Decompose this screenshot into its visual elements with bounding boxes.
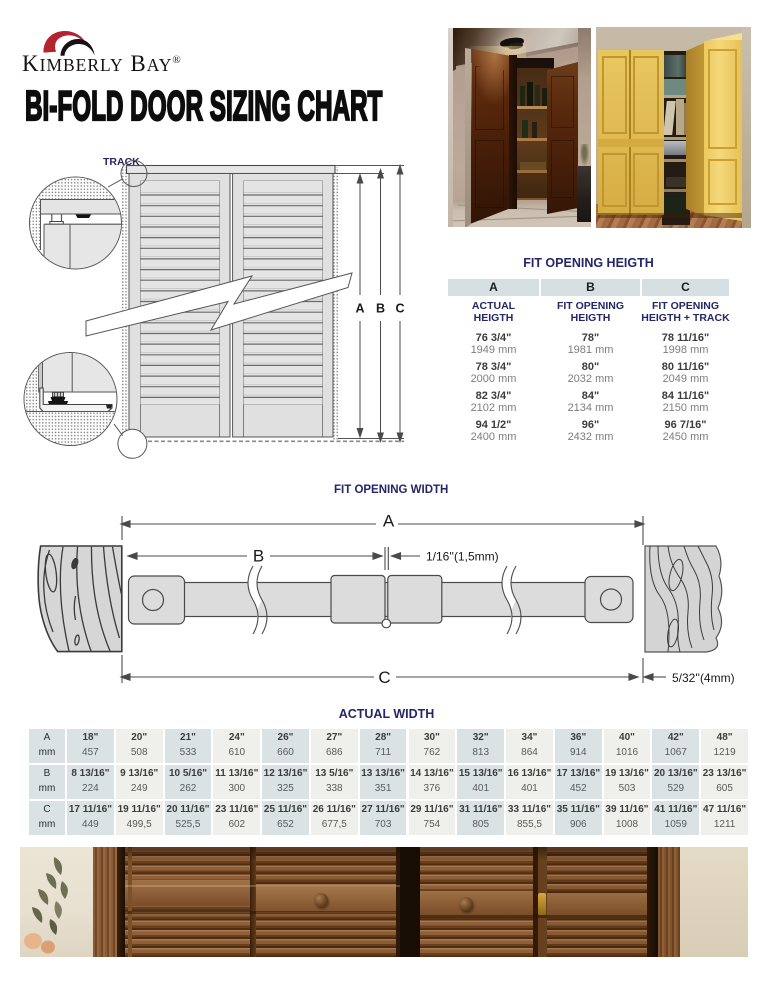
svg-text:1/16''(1,5mm): 1/16''(1,5mm) xyxy=(426,550,499,564)
svg-text:B: B xyxy=(253,547,264,566)
svg-text:C: C xyxy=(395,302,404,316)
svg-text:A: A xyxy=(383,512,395,531)
svg-text:5/32''(4mm): 5/32''(4mm) xyxy=(672,671,735,685)
svg-text:A: A xyxy=(355,302,364,316)
svg-text:B: B xyxy=(376,302,385,316)
svg-text:TRACK: TRACK xyxy=(103,156,140,168)
svg-text:C: C xyxy=(378,668,390,687)
